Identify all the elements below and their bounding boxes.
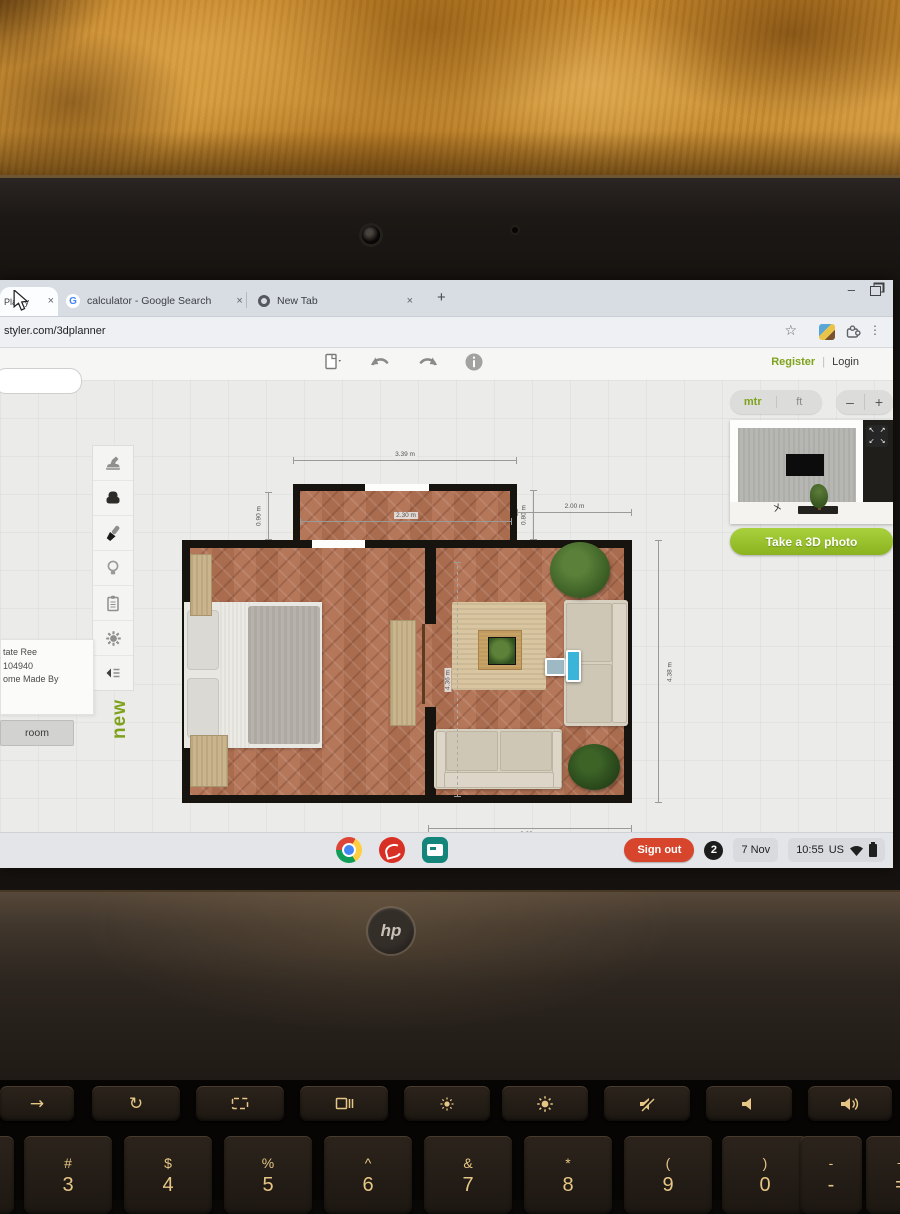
key-mute[interactable] [604,1086,690,1121]
key-brightness-down[interactable] [404,1086,490,1121]
undo-icon[interactable] [368,354,392,370]
dimension-top-room: 2.30 m [300,521,512,522]
key-back[interactable]: → [0,1086,74,1121]
key-fullscreen[interactable] [196,1086,284,1121]
preview-tv [786,454,824,476]
address-bar[interactable]: styler.com/3dplanner [4,325,106,337]
zoom-out-button[interactable]: – [836,394,865,410]
wardrobe[interactable] [190,554,212,616]
newtab-favicon [258,295,270,307]
key-9[interactable]: (9 [624,1136,712,1214]
project-line: ome Made By [3,673,93,687]
key-minus[interactable]: -- [800,1136,862,1214]
bed[interactable] [184,602,322,748]
painted-wall [0,0,900,186]
roomstyler-page: Register|Login mtr ft – + [0,348,893,835]
key-7[interactable]: &7 [424,1136,512,1214]
chromeos-shelf: Sign out 2 7 Nov 10:55 US [0,832,893,868]
lighting-tool-icon[interactable] [93,551,133,586]
preview-plant [810,484,828,508]
fullscreen-expand-icon[interactable]: ↖↗↙↘ [866,425,888,447]
new-plan-icon[interactable] [322,352,344,372]
tab-divider [246,292,247,308]
planner-topbar: Register|Login [0,348,893,381]
bookmark-star-icon[interactable]: ☆ [784,323,797,339]
selected-object-handle[interactable] [545,658,566,676]
battery-icon [869,844,877,857]
table-plant [488,637,516,665]
dimension-bottom: 3.29 m [428,828,632,829]
selected-object[interactable] [566,650,581,682]
hp-logo: hp [368,908,414,954]
wardrobe[interactable] [390,620,416,726]
stamp-tool-icon[interactable] [93,446,133,481]
sign-out-button[interactable]: Sign out [624,838,694,862]
plant-small[interactable] [568,744,620,790]
chrome-app-icon[interactable] [336,837,362,863]
keyboard: → ↻ #3 $4 %5 ^6 &7 *8 (9 ) [0,1080,900,1200]
key-5[interactable]: %5 [224,1136,312,1214]
laptop-screen: Plan y × G calculator - Google Search × … [0,280,893,868]
window-minimize-button[interactable]: – [848,282,855,297]
tool-sidebar [92,445,134,691]
project-line: 104940 [3,660,93,674]
furniture-tool-icon[interactable] [93,481,133,516]
key-brightness-up[interactable] [502,1086,588,1121]
units-ft-button[interactable]: ft [777,396,823,408]
info-icon[interactable] [464,352,484,372]
key-6[interactable]: ^6 [324,1136,412,1214]
project-line: tate Ree [3,646,93,660]
date-tray[interactable]: 7 Nov [733,838,778,862]
plant-large[interactable] [550,542,610,598]
key-volume-up[interactable] [808,1086,892,1121]
auth-divider: | [822,356,825,368]
key-8[interactable]: *8 [524,1136,612,1214]
units-mtr-button[interactable]: mtr [730,396,777,408]
units-toggle: mtr ft [730,390,822,414]
tab-close-icon[interactable]: × [236,296,242,307]
register-link[interactable]: Register [771,356,815,368]
tab-close-icon[interactable]: × [48,296,54,307]
login-link[interactable]: Login [832,356,859,368]
window-restore-button[interactable] [870,286,881,296]
settings-gear-icon[interactable] [93,621,133,656]
dimension-mid: 0.80 m [533,490,534,540]
extensions-puzzle-icon[interactable] [844,323,861,340]
key-plus[interactable]: += [866,1136,900,1214]
tab-newtab[interactable]: New Tab × [258,288,413,314]
dimension-right-top: 2.00 m [517,512,632,513]
key-4[interactable]: $4 [124,1136,212,1214]
webcam [362,226,380,244]
coffee-table[interactable] [478,630,522,670]
dimension-top: 3.39 m [293,460,517,461]
project-info-panel: tate Ree 104940 ome Made By [0,639,94,715]
door-leaf [422,624,425,704]
new-tab-button[interactable]: + [437,289,446,306]
tab-calculator[interactable]: G calculator - Google Search × [66,288,243,314]
region-label: US [829,844,844,856]
google-favicon: G [66,294,80,308]
extension-icon[interactable] [819,324,835,340]
dimension-right: 4.38 m [658,540,659,803]
zoom-in-button[interactable]: + [865,394,893,410]
window [312,540,365,548]
collapse-panel-icon[interactable] [93,656,133,690]
room-button[interactable]: room [0,720,74,746]
paint-tool-icon[interactable] [93,516,133,551]
take-3d-photo-button[interactable]: Take a 3D photo [730,528,893,555]
dimension-left: 0.90 m [268,492,269,540]
search-field-remnant[interactable] [0,368,82,394]
wifi-icon [849,844,864,857]
notes-tool-icon[interactable] [93,586,133,621]
laptop-body: hp [0,890,900,1082]
calculator-app-icon[interactable] [422,837,448,863]
clock: 10:55 [796,844,824,856]
new-plan-tab[interactable]: new [104,688,136,750]
notification-badge[interactable]: 2 [704,841,723,860]
browser-menu-icon[interactable]: ⋮ [869,323,881,337]
tab-close-icon[interactable]: × [407,296,413,307]
key-0[interactable]: )0 [722,1136,808,1214]
key-volume-down[interactable] [706,1086,792,1121]
dimension-living: 4.36 m [457,562,458,797]
window [365,484,429,491]
webcam-led [512,227,518,233]
mouse-cursor [12,290,30,312]
3d-preview[interactable]: 〤 ↖↗↙↘ [730,420,893,524]
status-tray[interactable]: 10:55 US [788,838,885,862]
divider-wall [425,548,436,624]
key-3[interactable]: #3 [24,1136,112,1214]
redo-icon[interactable] [416,354,440,370]
wardrobe[interactable] [190,735,228,787]
planner-canvas: mtr ft – + 〤 ↖↗↙↘ Take a 3D [0,380,893,835]
zoom-controls: – + [836,390,893,414]
browser-tabstrip: Plan y × G calculator - Google Search × … [0,280,893,317]
canvas-app-icon[interactable] [379,837,405,863]
key-refresh[interactable]: ↻ [92,1086,180,1121]
key-partial[interactable] [0,1136,14,1214]
sofa-bottom[interactable] [434,729,562,789]
key-overview[interactable] [300,1086,388,1121]
browser-toolbar: styler.com/3dplanner ☆ ⋮ [0,317,893,348]
